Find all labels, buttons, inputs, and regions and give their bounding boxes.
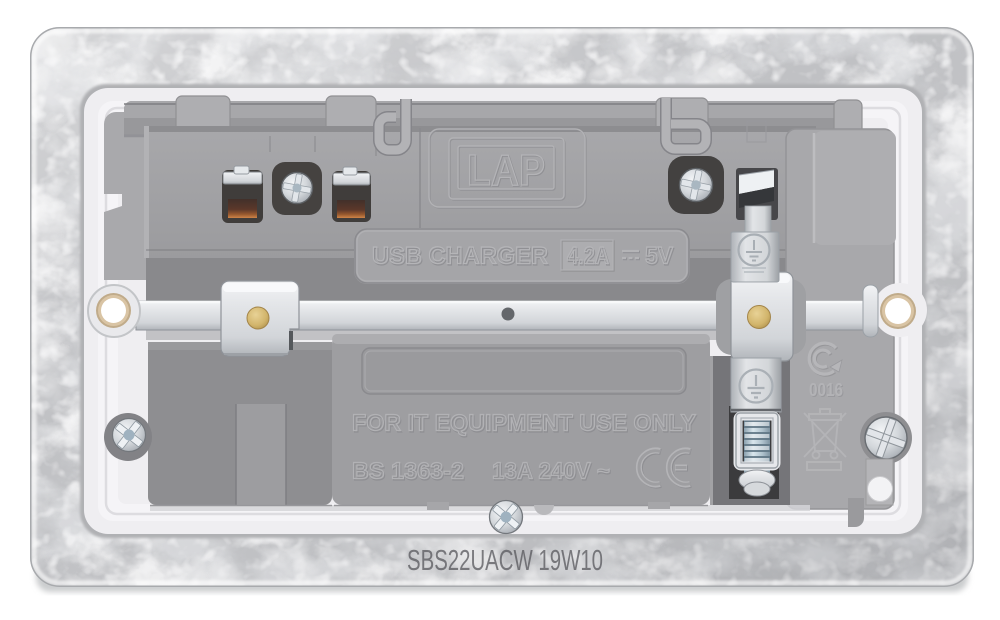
svg-text:LAP: LAP — [467, 146, 545, 195]
svg-text:FOR IT EQUIPMENT USE ONLY: FOR IT EQUIPMENT USE ONLY — [352, 410, 696, 436]
svg-text:4.2A: 4.2A — [567, 243, 609, 270]
svg-text:13A 240V ~: 13A 240V ~ — [492, 458, 610, 484]
svg-text:USB CHARGER: USB CHARGER — [372, 243, 548, 270]
svg-text:SBS22UACW 19W10: SBS22UACW 19W10 — [407, 545, 603, 577]
svg-text:5V: 5V — [645, 243, 673, 270]
svg-text:BS 1363-2: BS 1363-2 — [352, 458, 464, 484]
svg-text:0016: 0016 — [809, 380, 843, 400]
